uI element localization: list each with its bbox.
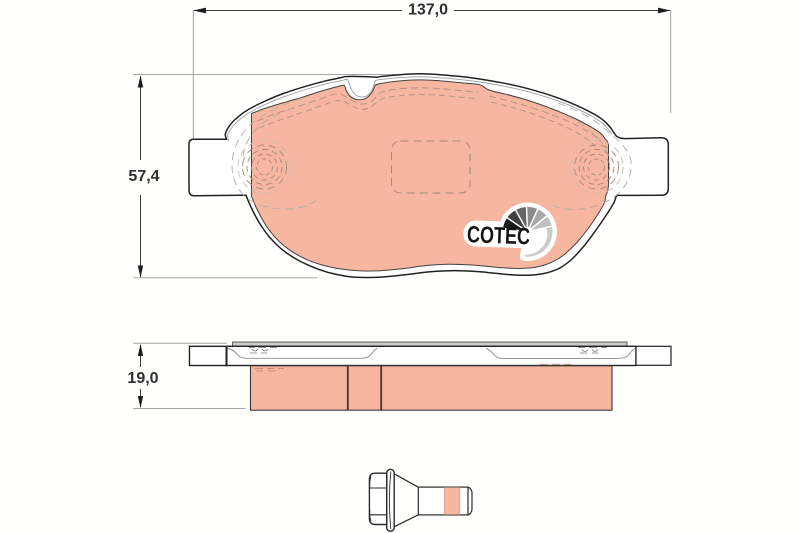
svg-text:137,0: 137,0: [408, 2, 448, 19]
svg-text:19,0: 19,0: [127, 370, 158, 387]
svg-text:COTEC: COTEC: [467, 221, 531, 249]
svg-text:57,4: 57,4: [128, 168, 159, 185]
